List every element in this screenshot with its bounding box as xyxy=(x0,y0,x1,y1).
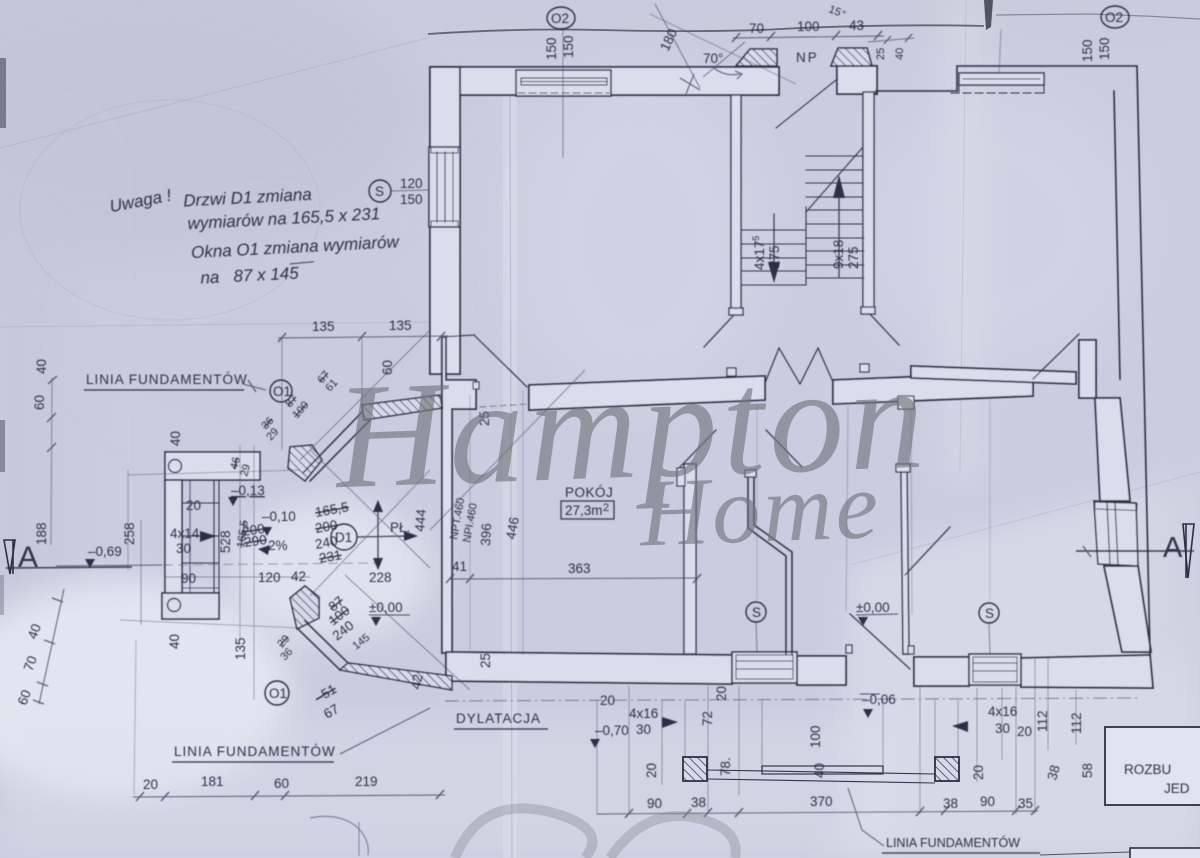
svg-text:4x175: 4x175 xyxy=(751,236,767,270)
svg-text:528: 528 xyxy=(218,530,233,553)
svg-text:40: 40 xyxy=(894,48,906,60)
svg-text:2%: 2% xyxy=(268,538,288,553)
svg-text:120: 120 xyxy=(258,570,281,585)
svg-text:O1: O1 xyxy=(273,384,291,399)
svg-text:60: 60 xyxy=(274,776,289,791)
svg-text:219: 219 xyxy=(355,774,378,789)
svg-text:150: 150 xyxy=(1097,37,1112,60)
svg-text:38: 38 xyxy=(691,795,706,810)
svg-text:25: 25 xyxy=(478,653,493,668)
svg-text:±0,00: ±0,00 xyxy=(369,600,403,615)
svg-text:275: 275 xyxy=(846,246,861,269)
svg-text:275: 275 xyxy=(767,245,782,268)
svg-text:LINIA FUNDAMENTÓW: LINIA FUNDAMENTÓW xyxy=(174,744,336,759)
svg-text:228: 228 xyxy=(369,570,392,585)
svg-text:363: 363 xyxy=(568,561,591,576)
svg-text:181: 181 xyxy=(201,774,224,789)
svg-text:PŁ.: PŁ. xyxy=(390,520,410,535)
svg-text:70: 70 xyxy=(749,21,764,36)
svg-text:58: 58 xyxy=(1080,763,1095,778)
svg-text:396: 396 xyxy=(478,523,494,546)
svg-text:150: 150 xyxy=(561,35,576,58)
svg-text:258: 258 xyxy=(122,522,137,545)
svg-text:LINIA FUNDAMENTÓW: LINIA FUNDAMENTÓW xyxy=(886,835,1020,850)
svg-text:188: 188 xyxy=(34,522,49,545)
svg-text:LINIA FUNDAMENTÓW: LINIA FUNDAMENTÓW xyxy=(86,372,248,387)
svg-text:4x16: 4x16 xyxy=(629,706,658,721)
svg-text:O2: O2 xyxy=(1105,10,1123,25)
svg-text:42: 42 xyxy=(408,673,425,690)
svg-text:370: 370 xyxy=(810,794,833,809)
svg-text:150: 150 xyxy=(1080,39,1095,62)
svg-text:70°: 70° xyxy=(703,51,723,66)
svg-text:20: 20 xyxy=(1017,724,1032,739)
svg-text:90: 90 xyxy=(647,796,662,811)
svg-text:42: 42 xyxy=(291,569,306,584)
svg-text:150: 150 xyxy=(544,37,559,60)
svg-text:S: S xyxy=(752,605,761,620)
svg-text:40: 40 xyxy=(168,431,183,446)
svg-text:90: 90 xyxy=(980,794,995,809)
svg-text:35: 35 xyxy=(1018,796,1033,811)
svg-text:A: A xyxy=(1163,532,1183,564)
svg-text:100: 100 xyxy=(808,725,823,748)
svg-text:20: 20 xyxy=(600,693,615,708)
svg-text:40: 40 xyxy=(167,634,182,649)
svg-text:112: 112 xyxy=(1069,712,1084,734)
svg-text:±0,00: ±0,00 xyxy=(856,600,890,615)
svg-text:–0,70: –0,70 xyxy=(595,723,629,738)
svg-text:Home: Home xyxy=(636,451,883,566)
svg-text:O1: O1 xyxy=(269,686,287,701)
svg-text:–0,13: –0,13 xyxy=(231,483,265,498)
svg-text:38: 38 xyxy=(943,796,958,811)
svg-text:40: 40 xyxy=(812,763,827,778)
svg-text:43: 43 xyxy=(849,18,864,33)
svg-text:20: 20 xyxy=(644,763,659,778)
svg-text:25: 25 xyxy=(875,48,887,60)
svg-text:135: 135 xyxy=(233,637,248,660)
svg-text:9x18: 9x18 xyxy=(831,240,846,269)
svg-text:120: 120 xyxy=(400,176,423,191)
svg-text:20: 20 xyxy=(971,765,986,780)
svg-text:O2: O2 xyxy=(551,11,569,26)
svg-text:60: 60 xyxy=(32,395,47,410)
svg-text:–0,69: –0,69 xyxy=(88,544,122,559)
svg-text:112: 112 xyxy=(1035,710,1050,732)
svg-text:4x14: 4x14 xyxy=(170,526,200,541)
svg-text:20: 20 xyxy=(143,777,158,792)
svg-text:S: S xyxy=(375,184,384,199)
svg-text:40: 40 xyxy=(34,359,49,374)
svg-text:78.: 78. xyxy=(718,757,733,776)
svg-text:20: 20 xyxy=(186,498,201,513)
svg-text:ROZBU: ROZBU xyxy=(1124,762,1171,777)
svg-text:72: 72 xyxy=(700,711,715,726)
svg-text:S: S xyxy=(985,606,994,621)
svg-text:4x16: 4x16 xyxy=(988,704,1017,719)
svg-text:30: 30 xyxy=(176,541,191,556)
svg-text:90: 90 xyxy=(181,571,196,586)
svg-text:41: 41 xyxy=(452,559,467,574)
svg-text:135: 135 xyxy=(389,318,412,333)
svg-text:30: 30 xyxy=(995,721,1010,736)
svg-text:30: 30 xyxy=(636,722,651,737)
svg-text:–0,10: –0,10 xyxy=(262,509,296,524)
svg-text:JED: JED xyxy=(1164,781,1190,796)
svg-text:NP: NP xyxy=(796,50,819,65)
svg-text:DYLATACJA: DYLATACJA xyxy=(456,711,541,726)
svg-text:20: 20 xyxy=(714,686,729,701)
svg-text:150: 150 xyxy=(400,192,423,207)
svg-text:135: 135 xyxy=(312,319,335,334)
svg-text:100: 100 xyxy=(797,19,820,34)
